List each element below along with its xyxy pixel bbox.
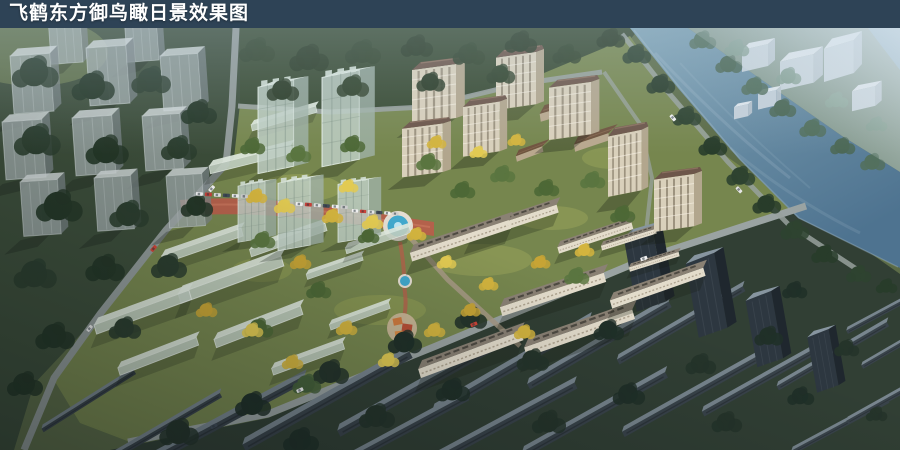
aerial-rendering bbox=[0, 28, 900, 450]
title-bar: 飞鹤东方御鸟瞰日景效果图 bbox=[0, 0, 900, 28]
rendering-frame: 飞鹤东方御鸟瞰日景效果图 bbox=[0, 0, 900, 450]
page-title: 飞鹤东方御鸟瞰日景效果图 bbox=[9, 0, 249, 28]
vignette bbox=[0, 28, 900, 450]
